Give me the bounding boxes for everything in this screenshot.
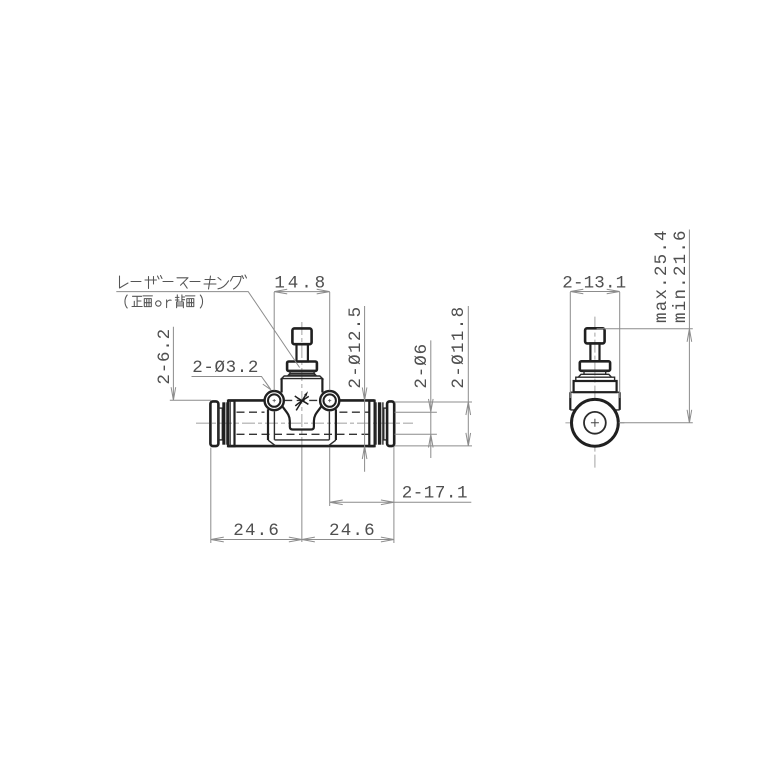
svg-text:2-17.1: 2-17.1 xyxy=(402,484,468,504)
svg-text:2-Ø3.2: 2-Ø3.2 xyxy=(192,358,259,378)
svg-text:max.25.4: max.25.4 xyxy=(652,229,672,323)
svg-text:24.6: 24.6 xyxy=(329,521,376,541)
svg-text:2-6.2: 2-6.2 xyxy=(155,328,175,385)
svg-text:2-Ø6: 2-Ø6 xyxy=(412,343,432,389)
svg-text:2-Ø12.5: 2-Ø12.5 xyxy=(346,306,366,389)
svg-text:24.6: 24.6 xyxy=(233,521,280,541)
svg-text:min.21.6: min.21.6 xyxy=(671,229,691,323)
svg-text:2-Ø11.8: 2-Ø11.8 xyxy=(449,306,469,389)
svg-text:14.8: 14.8 xyxy=(274,274,328,294)
